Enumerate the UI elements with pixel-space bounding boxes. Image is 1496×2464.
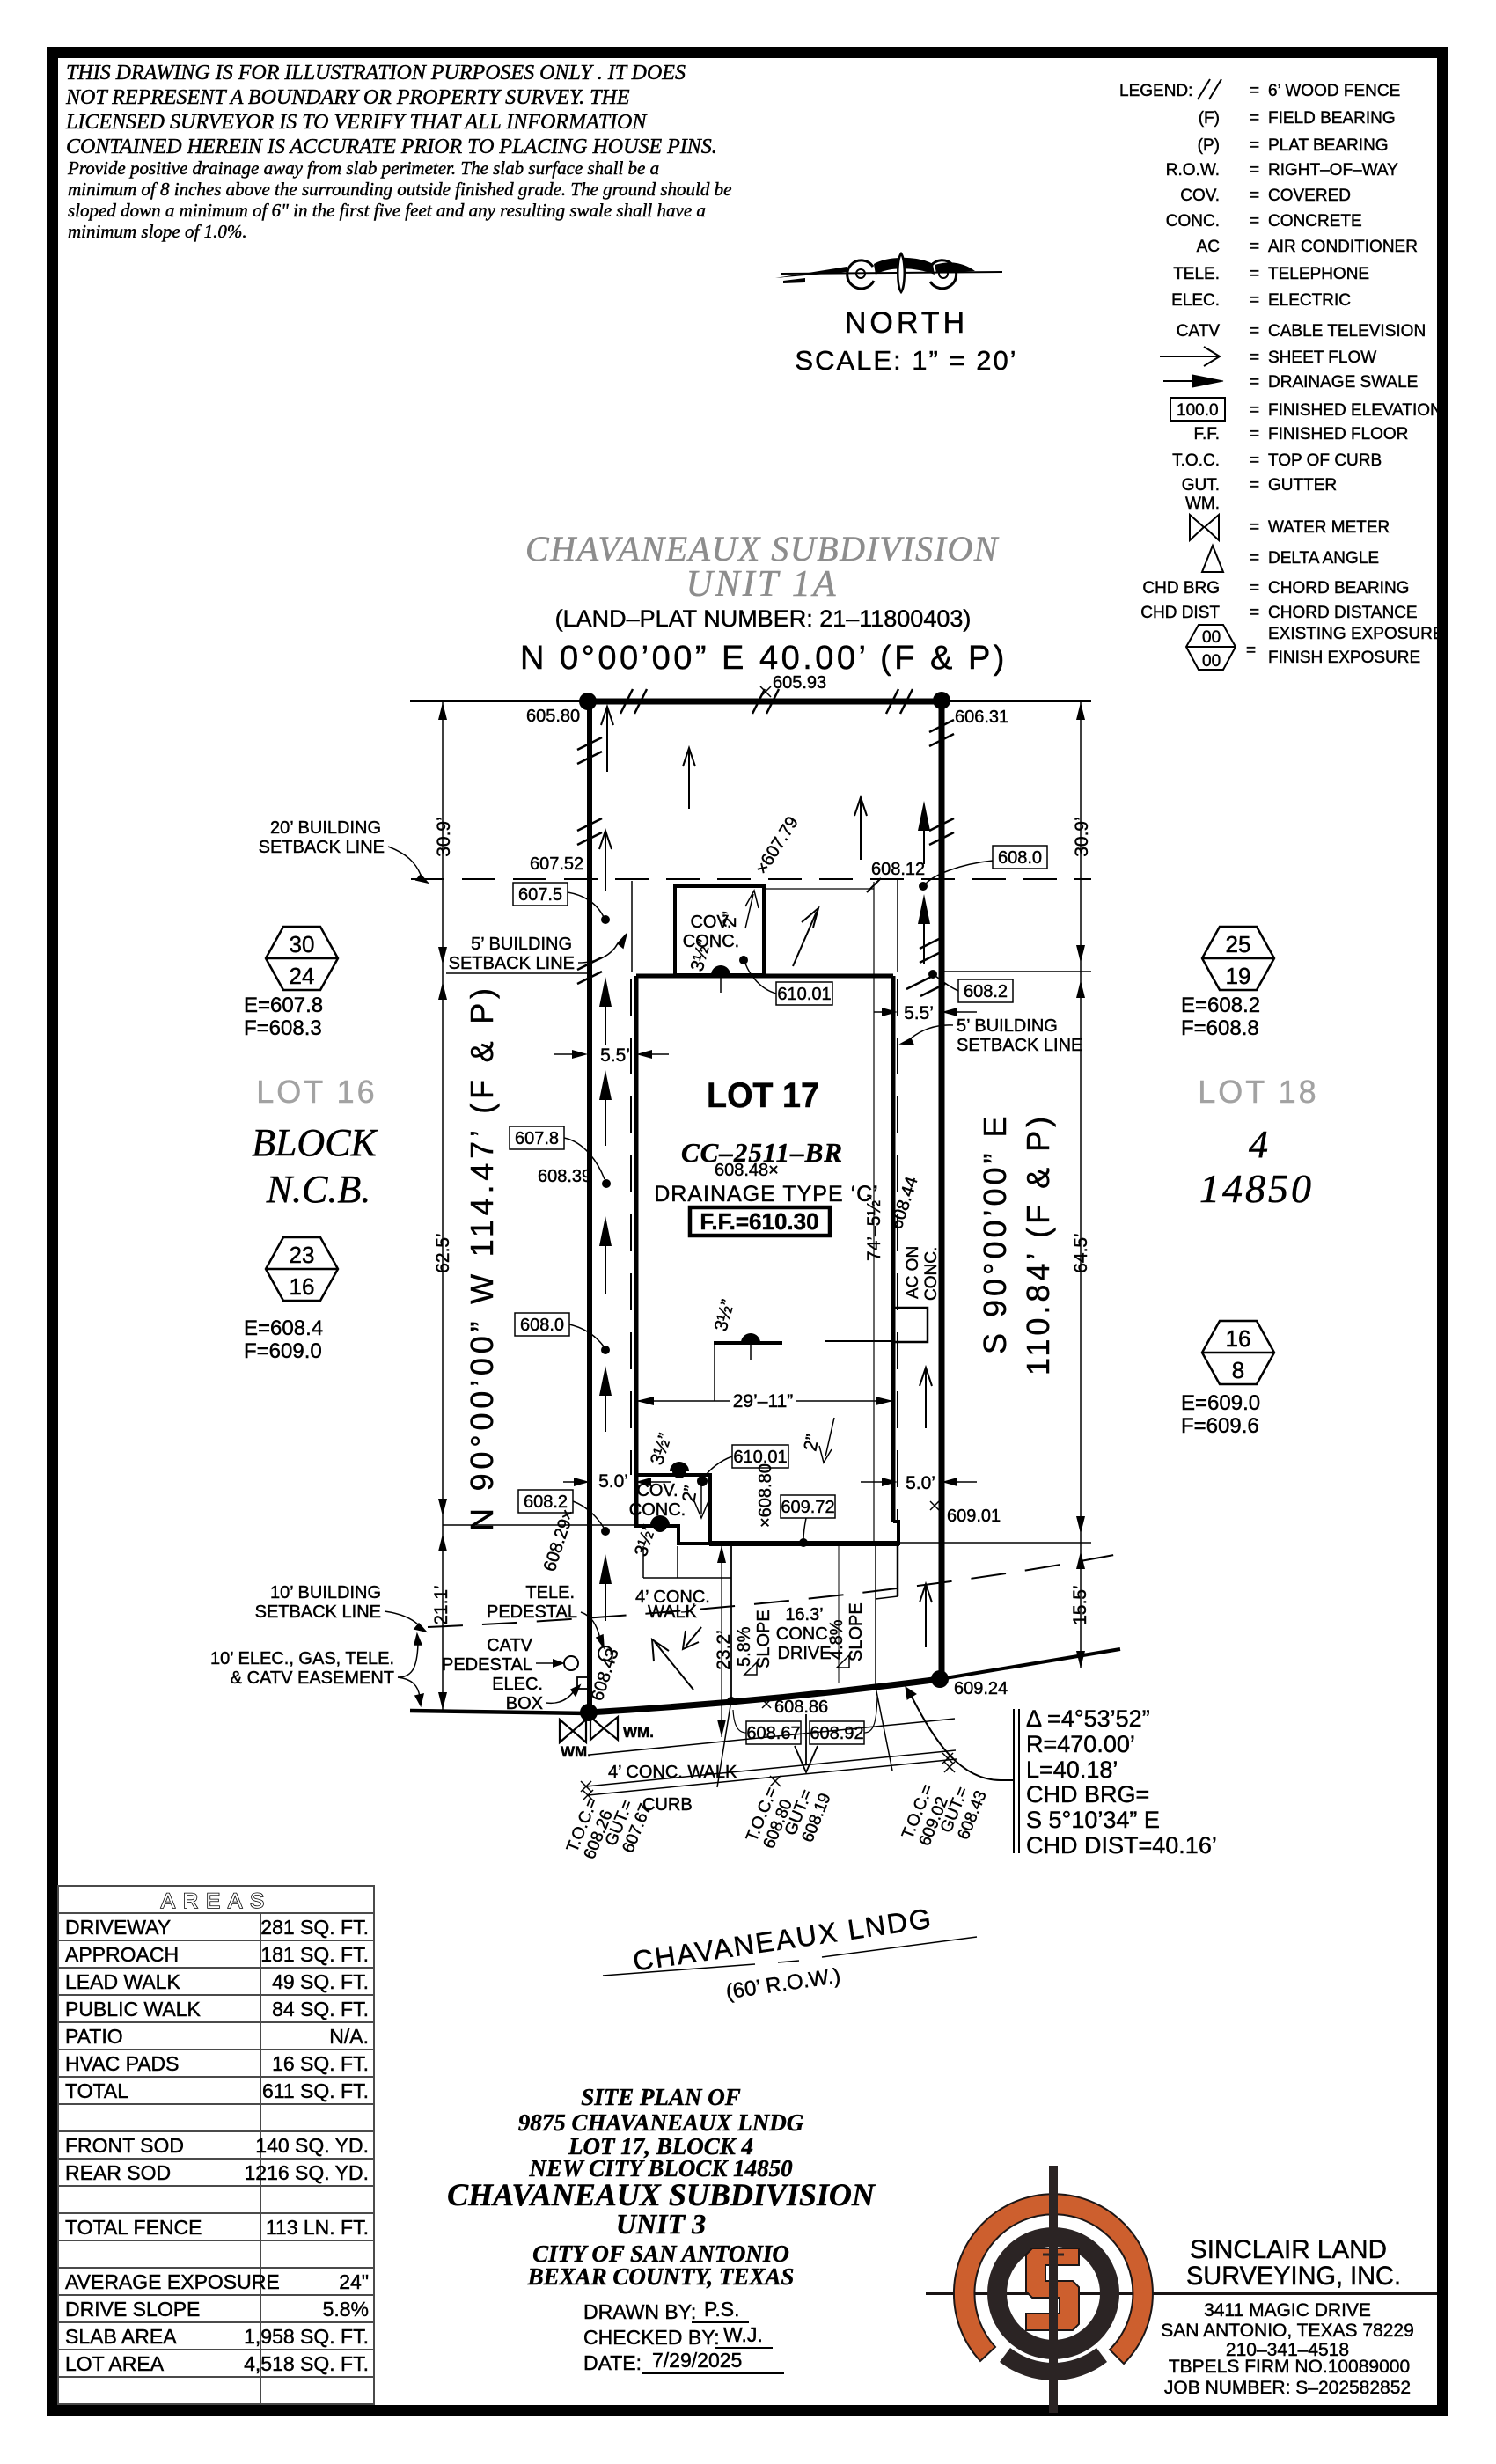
svg-text:TOTAL FENCE: TOTAL FENCE bbox=[65, 2216, 202, 2239]
svg-text:LOT 17: LOT 17 bbox=[707, 1076, 819, 1115]
svg-text:PATIO: PATIO bbox=[65, 2025, 123, 2048]
svg-text:WM.: WM. bbox=[561, 1743, 591, 1760]
svg-text:TBPELS FIRM NO.10089000: TBPELS FIRM NO.10089000 bbox=[1169, 2357, 1410, 2377]
svg-text:PEDESTAL: PEDESTAL bbox=[442, 1655, 532, 1675]
svg-text:62.5’: 62.5’ bbox=[433, 1233, 453, 1273]
svg-text:21.1’: 21.1’ bbox=[431, 1585, 451, 1625]
svg-text:30.9’: 30.9’ bbox=[1072, 817, 1092, 857]
svg-text:608.2: 608.2 bbox=[964, 982, 1008, 1001]
svg-text:607.8: 607.8 bbox=[515, 1129, 559, 1148]
svg-text:SHEET FLOW: SHEET FLOW bbox=[1268, 348, 1376, 367]
svg-text:N/A.: N/A. bbox=[329, 2025, 369, 2048]
svg-text:SAN ANTONIO, TEXAS 78229: SAN ANTONIO, TEXAS 78229 bbox=[1161, 2321, 1414, 2341]
svg-text:CHORD BEARING: CHORD BEARING bbox=[1268, 579, 1409, 598]
svg-text:REAR SOD: REAR SOD bbox=[65, 2161, 171, 2184]
svg-text:609.24: 609.24 bbox=[954, 1679, 1008, 1698]
svg-text:sloped down a minimum of 6" in: sloped down a minimum of 6" in the first… bbox=[68, 200, 706, 221]
svg-text:4’ CONC. WALK: 4’ CONC. WALK bbox=[608, 1763, 737, 1782]
svg-text:F.F.=610.30: F.F.=610.30 bbox=[700, 1208, 818, 1235]
svg-text:16.3’: 16.3’ bbox=[785, 1605, 823, 1624]
svg-text:SETBACK LINE: SETBACK LINE bbox=[259, 838, 385, 857]
svg-text:RIGHT–OF–WAY: RIGHT–OF–WAY bbox=[1268, 161, 1398, 180]
svg-text:(LAND–PLAT NUMBER: 21–1180040: (LAND–PLAT NUMBER: 21–11800403) bbox=[555, 605, 972, 632]
svg-text:=: = bbox=[1250, 161, 1259, 180]
svg-text:608.12: 608.12 bbox=[871, 860, 925, 879]
svg-text:Provide positive drainage away: Provide positive drainage away from slab… bbox=[67, 158, 659, 179]
svg-text:NORTH: NORTH bbox=[845, 306, 968, 340]
svg-text:10’ BUILDING: 10’ BUILDING bbox=[270, 1583, 381, 1602]
svg-text:R=470.00’: R=470.00’ bbox=[1026, 1731, 1135, 1757]
svg-text:UNIT 3: UNIT 3 bbox=[616, 2208, 706, 2240]
svg-text:HVAC PADS: HVAC PADS bbox=[65, 2052, 180, 2075]
svg-text:DRIVE SLOPE: DRIVE SLOPE bbox=[65, 2298, 200, 2321]
svg-text:DRAINAGE SWALE: DRAINAGE SWALE bbox=[1268, 373, 1418, 392]
svg-text:CHD BRG: CHD BRG bbox=[1142, 579, 1220, 598]
svg-text:BEXAR COUNTY, TEXAS: BEXAR COUNTY, TEXAS bbox=[527, 2263, 795, 2290]
svg-text:607.5: 607.5 bbox=[518, 885, 562, 905]
svg-text:6’ WOOD FENCE: 6’ WOOD FENCE bbox=[1268, 82, 1400, 100]
svg-text:=: = bbox=[1250, 451, 1259, 470]
svg-text:F=609.6: F=609.6 bbox=[1181, 1414, 1259, 1438]
svg-text:CABLE TELEVISION: CABLE TELEVISION bbox=[1268, 322, 1426, 341]
svg-text:30: 30 bbox=[290, 931, 315, 957]
svg-text:(P): (P) bbox=[1198, 136, 1220, 155]
svg-text:606.31: 606.31 bbox=[955, 708, 1008, 727]
svg-text:9875 CHAVANEAUX LNDG: 9875 CHAVANEAUX LNDG bbox=[518, 2109, 804, 2136]
svg-text:FINISHED ELEVATION: FINISHED ELEVATION bbox=[1268, 401, 1442, 420]
svg-text:UNIT 1A: UNIT 1A bbox=[686, 564, 838, 605]
svg-text:=: = bbox=[1250, 238, 1259, 256]
svg-text:10’ ELEC., GAS, TELE.: 10’ ELEC., GAS, TELE. bbox=[210, 1649, 394, 1668]
svg-text:Δ =4°53’52”: Δ =4°53’52” bbox=[1026, 1705, 1150, 1732]
svg-text:DRAINAGE TYPE ‘C’: DRAINAGE TYPE ‘C’ bbox=[654, 1182, 878, 1206]
svg-text:DRAWN BY:: DRAWN BY: bbox=[583, 2300, 696, 2323]
svg-text:=: = bbox=[1250, 401, 1259, 420]
svg-text:74’–5½”: 74’–5½” bbox=[864, 1194, 884, 1261]
svg-text:15.5’: 15.5’ bbox=[1070, 1585, 1090, 1625]
svg-text:COV.: COV. bbox=[1180, 187, 1220, 205]
svg-text:CATV: CATV bbox=[1177, 322, 1221, 341]
svg-text:minimum slope of 1.0%.: minimum slope of 1.0%. bbox=[68, 221, 247, 242]
svg-text:609.01: 609.01 bbox=[947, 1507, 1001, 1526]
svg-text:608.67: 608.67 bbox=[746, 1724, 800, 1743]
svg-text:APPROACH: APPROACH bbox=[65, 1943, 179, 1966]
svg-text:FINISH EXPOSURE: FINISH EXPOSURE bbox=[1268, 649, 1420, 667]
svg-text:609.72: 609.72 bbox=[781, 1498, 834, 1517]
svg-text:19: 19 bbox=[1226, 963, 1251, 989]
svg-text:P.S.: P.S. bbox=[704, 2298, 740, 2321]
svg-text:AREAS: AREAS bbox=[161, 1889, 272, 1913]
svg-text:16: 16 bbox=[1226, 1325, 1251, 1352]
svg-text:5.5’: 5.5’ bbox=[600, 1045, 630, 1066]
svg-text:2”: 2” bbox=[720, 911, 740, 928]
svg-text:AIR CONDITIONER: AIR CONDITIONER bbox=[1268, 238, 1418, 256]
svg-text:611 SQ. FT.: 611 SQ. FT. bbox=[262, 2079, 369, 2102]
svg-text:608.48×: 608.48× bbox=[715, 1161, 779, 1180]
svg-text:(F): (F) bbox=[1199, 109, 1220, 128]
svg-text:CHAVANEAUX SUBDIVISION: CHAVANEAUX SUBDIVISION bbox=[525, 529, 1000, 568]
svg-text:BOX: BOX bbox=[506, 1694, 543, 1713]
svg-text:=: = bbox=[1246, 642, 1256, 660]
svg-text:CHD DIST: CHD DIST bbox=[1140, 604, 1220, 622]
svg-text:=: = bbox=[1250, 579, 1259, 598]
svg-text:=: = bbox=[1250, 212, 1259, 231]
svg-text:W.J.: W.J. bbox=[723, 2323, 763, 2346]
svg-text:DELTA ANGLE: DELTA ANGLE bbox=[1268, 549, 1379, 568]
svg-text:5.5’: 5.5’ bbox=[904, 1003, 934, 1023]
svg-text:FIELD BEARING: FIELD BEARING bbox=[1268, 109, 1396, 128]
svg-text:=: = bbox=[1250, 425, 1259, 444]
svg-text:CHD BRG=: CHD BRG= bbox=[1026, 1781, 1149, 1808]
svg-text:605.80: 605.80 bbox=[526, 707, 580, 726]
svg-text:S 90°00’00” E: S 90°00’00” E bbox=[977, 1112, 1013, 1354]
svg-text:=: = bbox=[1250, 604, 1259, 622]
svg-text:JOB NUMBER: S–202582852: JOB NUMBER: S–202582852 bbox=[1164, 2378, 1411, 2398]
svg-text:=: = bbox=[1250, 265, 1259, 283]
svg-text:24": 24" bbox=[339, 2270, 369, 2293]
svg-text:8: 8 bbox=[1232, 1357, 1244, 1383]
svg-text:=: = bbox=[1250, 109, 1259, 128]
svg-text:PLAT BEARING: PLAT BEARING bbox=[1268, 136, 1389, 155]
svg-text:84 SQ. FT.: 84 SQ. FT. bbox=[272, 1998, 369, 2020]
svg-text:16 SQ. FT.: 16 SQ. FT. bbox=[272, 2052, 369, 2075]
svg-text:E=607.8: E=607.8 bbox=[244, 994, 323, 1017]
svg-text:100.0: 100.0 bbox=[1177, 401, 1219, 420]
svg-text:=: = bbox=[1250, 373, 1259, 392]
svg-text:SLOPE: SLOPE bbox=[754, 1610, 774, 1668]
svg-text:FRONT SOD: FRONT SOD bbox=[65, 2134, 184, 2157]
svg-text:minimum of 8 inches above the: minimum of 8 inches above the surroundin… bbox=[68, 179, 731, 200]
svg-text:5.8%: 5.8% bbox=[735, 1626, 754, 1667]
svg-text:5’ BUILDING: 5’ BUILDING bbox=[957, 1016, 1058, 1036]
svg-text:5.0’: 5.0’ bbox=[906, 1473, 935, 1493]
svg-text:=: = bbox=[1250, 549, 1259, 568]
svg-text:PUBLIC WALK: PUBLIC WALK bbox=[65, 1998, 201, 2020]
svg-text:WATER METER: WATER METER bbox=[1268, 518, 1390, 537]
svg-text:608.86: 608.86 bbox=[774, 1698, 828, 1717]
svg-text:& CATV EASEMENT: & CATV EASEMENT bbox=[231, 1668, 394, 1688]
svg-text:LOT 18: LOT 18 bbox=[1198, 1074, 1318, 1110]
svg-text:49 SQ. FT.: 49 SQ. FT. bbox=[272, 1970, 369, 1993]
svg-text:5.8%: 5.8% bbox=[323, 2298, 369, 2321]
svg-text:SINCLAIR LAND: SINCLAIR LAND bbox=[1190, 2235, 1387, 2264]
svg-text:SETBACK LINE: SETBACK LINE bbox=[255, 1602, 381, 1622]
svg-text:COVERED: COVERED bbox=[1268, 187, 1351, 205]
svg-text:BLOCK: BLOCK bbox=[252, 1121, 378, 1164]
svg-text:LEGEND:: LEGEND: bbox=[1119, 82, 1192, 100]
svg-text:3411 MAGIC DRIVE: 3411 MAGIC DRIVE bbox=[1204, 2300, 1371, 2321]
svg-text:ELECTRIC: ELECTRIC bbox=[1268, 291, 1351, 310]
svg-text:110.84’ (F & P): 110.84’ (F & P) bbox=[1020, 1113, 1056, 1375]
svg-text:281 SQ. FT.: 281 SQ. FT. bbox=[260, 1916, 369, 1939]
svg-text:E=608.4: E=608.4 bbox=[244, 1316, 323, 1340]
svg-text:00: 00 bbox=[1202, 652, 1221, 671]
svg-text:30.9’: 30.9’ bbox=[434, 817, 454, 857]
svg-text:24: 24 bbox=[290, 963, 315, 989]
svg-text:AVERAGE EXPOSURE: AVERAGE EXPOSURE bbox=[65, 2270, 280, 2293]
svg-text:605.93: 605.93 bbox=[773, 673, 826, 693]
svg-text:14850: 14850 bbox=[1199, 1166, 1314, 1211]
svg-text:THIS DRAWING IS FOR ILLUSTRATI: THIS DRAWING IS FOR ILLUSTRATION PURPOSE… bbox=[66, 62, 686, 84]
svg-text:4,518 SQ. FT.: 4,518 SQ. FT. bbox=[244, 2352, 369, 2375]
svg-text:LOT 16: LOT 16 bbox=[256, 1074, 377, 1110]
svg-text:140 SQ. YD.: 140 SQ. YD. bbox=[255, 2134, 369, 2157]
svg-text:23.2’: 23.2’ bbox=[714, 1630, 734, 1670]
svg-text:608.39: 608.39 bbox=[538, 1167, 591, 1186]
svg-text:=: = bbox=[1250, 82, 1259, 100]
svg-text:CONC.: CONC. bbox=[1166, 212, 1220, 231]
svg-text:SURVEYING, INC.: SURVEYING, INC. bbox=[1186, 2262, 1401, 2291]
svg-text:CHECKED BY:: CHECKED BY: bbox=[583, 2326, 720, 2349]
svg-text:608.0: 608.0 bbox=[520, 1316, 564, 1335]
svg-text:CHD DIST=40.16’: CHD DIST=40.16’ bbox=[1026, 1832, 1217, 1859]
svg-text:SETBACK LINE: SETBACK LINE bbox=[449, 954, 575, 973]
svg-text:F.F.: F.F. bbox=[1193, 425, 1220, 444]
svg-text:WALK: WALK bbox=[648, 1602, 698, 1622]
svg-text:113 LN. FT.: 113 LN. FT. bbox=[266, 2216, 369, 2239]
svg-text:WM.: WM. bbox=[1185, 495, 1220, 513]
svg-text:GUTTER: GUTTER bbox=[1268, 476, 1337, 495]
svg-text:607.52: 607.52 bbox=[530, 854, 583, 874]
svg-text:DRIVE: DRIVE bbox=[777, 1644, 831, 1663]
svg-text:1216 SQ. YD.: 1216 SQ. YD. bbox=[245, 2161, 370, 2184]
svg-text:N 90°00’00” W 114.47’ (F & P): N 90°00’00” W 114.47’ (F & P) bbox=[464, 984, 500, 1531]
svg-text:CONC.: CONC. bbox=[776, 1624, 832, 1644]
svg-text:=: = bbox=[1250, 518, 1259, 537]
svg-text:00: 00 bbox=[1202, 628, 1221, 647]
svg-text:SLAB AREA: SLAB AREA bbox=[65, 2325, 177, 2348]
svg-text:CONC.: CONC. bbox=[922, 1247, 941, 1301]
svg-text:64.5’: 64.5’ bbox=[1071, 1233, 1091, 1273]
svg-text:5’ BUILDING: 5’ BUILDING bbox=[471, 935, 572, 954]
svg-text:610.01: 610.01 bbox=[777, 985, 831, 1004]
svg-text:29’–11”: 29’–11” bbox=[733, 1391, 794, 1412]
svg-text:E=609.0: E=609.0 bbox=[1181, 1391, 1260, 1415]
svg-text:CONTAINED HEREIN IS ACCURATE P: CONTAINED HEREIN IS ACCURATE PRIOR TO PL… bbox=[66, 136, 717, 158]
svg-text:=: = bbox=[1250, 291, 1259, 310]
svg-text:TOP OF CURB: TOP OF CURB bbox=[1268, 451, 1382, 470]
svg-text:608.92: 608.92 bbox=[810, 1724, 863, 1743]
svg-text:EXISTING EXPOSURE: EXISTING EXPOSURE bbox=[1268, 625, 1444, 643]
svg-text:LICENSED SURVEYOR IS TO VERIFY: LICENSED SURVEYOR IS TO VERIFY THAT ALL … bbox=[65, 111, 648, 134]
svg-text:GUT.: GUT. bbox=[1182, 476, 1220, 495]
svg-text:T.O.C.: T.O.C. bbox=[1172, 451, 1220, 470]
svg-text:20’ BUILDING: 20’ BUILDING bbox=[270, 818, 381, 838]
svg-text:=: = bbox=[1250, 136, 1259, 155]
svg-text:=: = bbox=[1250, 322, 1259, 341]
svg-text:5.0’: 5.0’ bbox=[598, 1471, 628, 1492]
svg-text:181 SQ. FT.: 181 SQ. FT. bbox=[260, 1943, 369, 1966]
svg-text:F=608.3: F=608.3 bbox=[244, 1016, 322, 1040]
svg-text:E=608.2: E=608.2 bbox=[1181, 994, 1260, 1017]
svg-text:16: 16 bbox=[290, 1273, 315, 1300]
svg-text:TELE.: TELE. bbox=[1173, 265, 1220, 283]
svg-text:×608.80: ×608.80 bbox=[756, 1463, 775, 1528]
svg-text:608.0: 608.0 bbox=[998, 848, 1042, 868]
svg-text:WM.: WM. bbox=[623, 1724, 654, 1741]
svg-text:CONCRETE: CONCRETE bbox=[1268, 212, 1362, 231]
svg-text:ELEC.: ELEC. bbox=[1171, 291, 1220, 310]
svg-text:PEDESTAL: PEDESTAL bbox=[487, 1602, 577, 1622]
svg-text:N 0°00’00” E 40.00’ (F & P): N 0°00’00” E 40.00’ (F & P) bbox=[520, 640, 1008, 677]
svg-text:LEAD WALK: LEAD WALK bbox=[65, 1970, 180, 1993]
svg-text:2”: 2” bbox=[678, 1484, 701, 1503]
svg-text:R.O.W.: R.O.W. bbox=[1166, 161, 1220, 180]
svg-text:CHAVANEAUX SUBDIVISION: CHAVANEAUX SUBDIVISION bbox=[447, 2177, 876, 2212]
svg-text:NOT REPRESENT A BOUNDARY OR PR: NOT REPRESENT A BOUNDARY OR PROPERTY SUR… bbox=[65, 86, 630, 109]
svg-text:AC ON: AC ON bbox=[904, 1246, 922, 1299]
svg-text:F=609.0: F=609.0 bbox=[244, 1339, 322, 1363]
svg-text:23: 23 bbox=[290, 1242, 315, 1268]
svg-text:7/29/2025: 7/29/2025 bbox=[652, 2349, 742, 2372]
svg-text:=: = bbox=[1250, 348, 1259, 367]
svg-text:ELEC.: ELEC. bbox=[492, 1675, 543, 1694]
svg-text:=: = bbox=[1250, 187, 1259, 205]
svg-text:4: 4 bbox=[1249, 1123, 1268, 1166]
svg-text:FINISHED FLOOR: FINISHED FLOOR bbox=[1268, 425, 1408, 444]
svg-text:25: 25 bbox=[1226, 931, 1251, 957]
svg-text:TELEPHONE: TELEPHONE bbox=[1268, 265, 1369, 283]
svg-text:4.8%: 4.8% bbox=[827, 1619, 847, 1660]
svg-text:SETBACK LINE: SETBACK LINE bbox=[957, 1036, 1082, 1055]
svg-text:SLOPE: SLOPE bbox=[847, 1602, 866, 1661]
svg-text:DRIVEWAY: DRIVEWAY bbox=[65, 1916, 171, 1939]
svg-text:AC: AC bbox=[1197, 238, 1220, 256]
svg-text:SITE PLAN OF: SITE PLAN OF bbox=[581, 2084, 741, 2110]
svg-text:LOT AREA: LOT AREA bbox=[65, 2352, 165, 2375]
svg-text:DATE:: DATE: bbox=[583, 2351, 642, 2374]
svg-text:=: = bbox=[1250, 476, 1259, 495]
svg-text:SCALE: 1” = 20’: SCALE: 1” = 20’ bbox=[795, 345, 1017, 376]
svg-text:1,958 SQ. FT.: 1,958 SQ. FT. bbox=[244, 2325, 369, 2348]
svg-text:S 5°10’34” E: S 5°10’34” E bbox=[1026, 1807, 1160, 1833]
svg-text:N.C.B.: N.C.B. bbox=[266, 1168, 371, 1211]
svg-text:TELE.: TELE. bbox=[525, 1583, 575, 1602]
svg-text:TOTAL: TOTAL bbox=[65, 2079, 128, 2102]
svg-text:CATV: CATV bbox=[487, 1636, 533, 1655]
svg-text:F=608.8: F=608.8 bbox=[1181, 1016, 1259, 1040]
svg-text:CHORD DISTANCE: CHORD DISTANCE bbox=[1268, 604, 1418, 622]
svg-text:L=40.18’: L=40.18’ bbox=[1026, 1756, 1118, 1783]
